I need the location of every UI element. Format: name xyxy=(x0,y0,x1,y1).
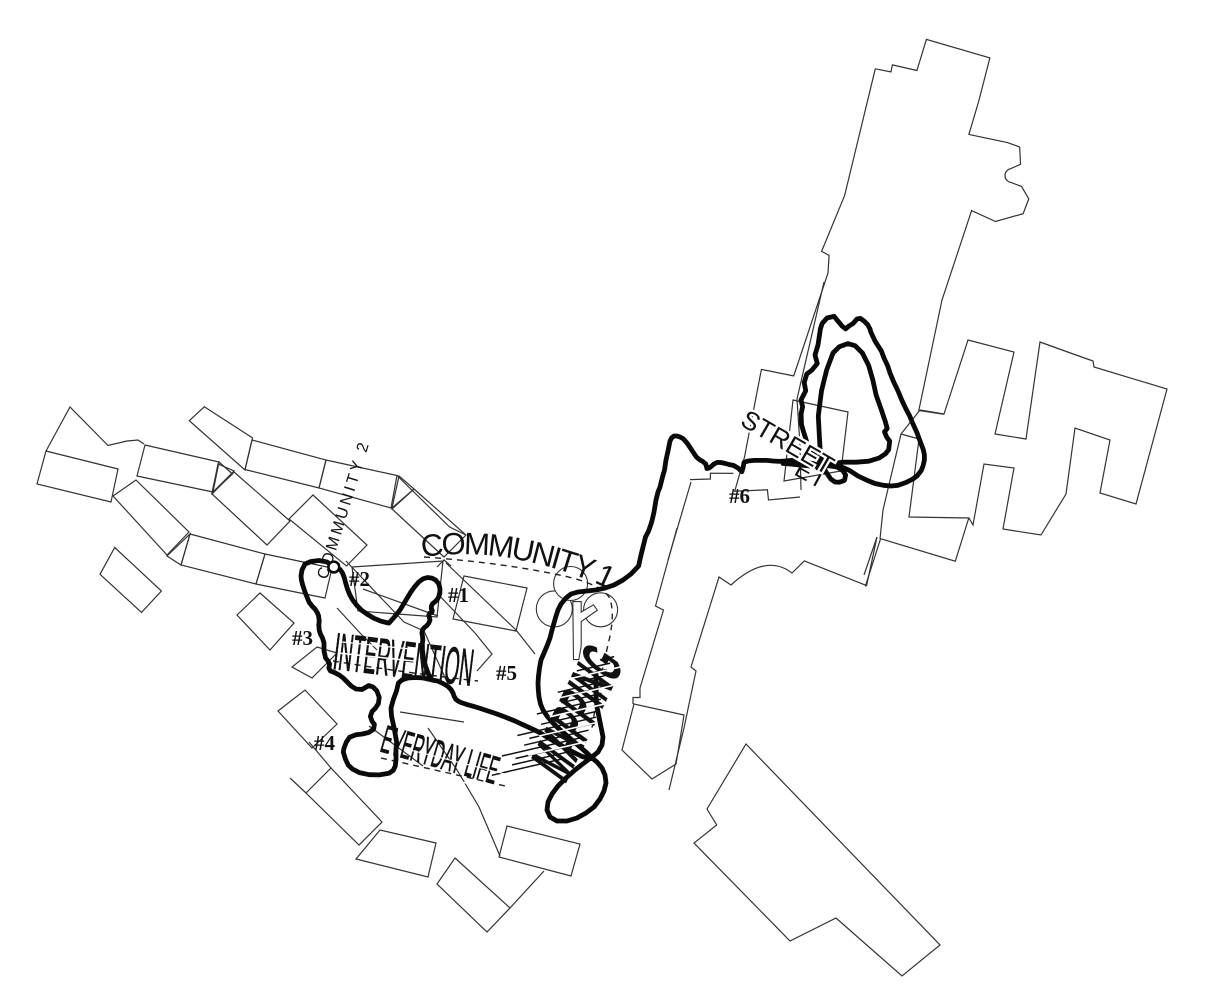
svg-text:#2: #2 xyxy=(349,567,370,591)
svg-text:#5: #5 xyxy=(496,661,517,685)
svg-text:#6: #6 xyxy=(729,484,750,508)
svg-text:#3: #3 xyxy=(292,626,313,650)
svg-text:#4: #4 xyxy=(314,731,336,755)
svg-text:#1: #1 xyxy=(448,583,469,607)
